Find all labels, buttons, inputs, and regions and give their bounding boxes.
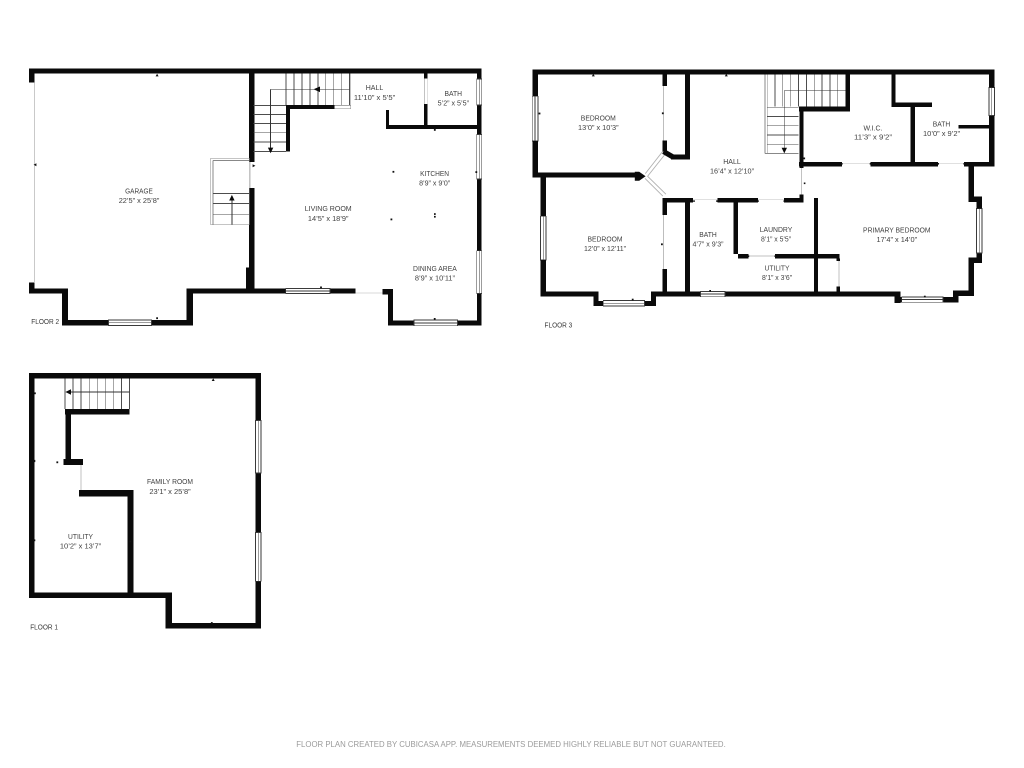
svg-text:10’2” x 13’7”: 10’2” x 13’7” <box>60 542 102 551</box>
svg-text:HALL: HALL <box>723 157 741 166</box>
svg-text:13’0” x 10’3”: 13’0” x 10’3” <box>578 123 619 132</box>
svg-text:11’3” x 9’2”: 11’3” x 9’2” <box>854 133 893 142</box>
svg-text:DINING AREA: DINING AREA <box>413 264 457 273</box>
svg-text:HALL: HALL <box>366 83 384 92</box>
svg-text:10’0” x 9’2”: 10’0” x 9’2” <box>923 129 961 138</box>
svg-text:FAMILY ROOM: FAMILY ROOM <box>147 477 193 486</box>
svg-text:16’4” x 12’10”: 16’4” x 12’10” <box>710 167 755 176</box>
svg-text:4’7” x 9’3”: 4’7” x 9’3” <box>693 239 725 248</box>
svg-text:LAUNDRY: LAUNDRY <box>760 225 793 234</box>
svg-text:BEDROOM: BEDROOM <box>588 234 623 243</box>
svg-text:KITCHEN: KITCHEN <box>420 169 449 178</box>
svg-text:FLOOR 1: FLOOR 1 <box>30 623 58 632</box>
svg-text:8’9” x 10’11”: 8’9” x 10’11” <box>415 274 456 283</box>
svg-text:BATH: BATH <box>933 119 951 128</box>
svg-text:FLOOR 2: FLOOR 2 <box>31 317 59 326</box>
svg-text:FLOOR PLAN CREATED BY CUBICASA: FLOOR PLAN CREATED BY CUBICASA APP. MEAS… <box>296 740 726 749</box>
svg-text:UTILITY: UTILITY <box>68 532 93 541</box>
svg-text:11’10” x 5’5”: 11’10” x 5’5” <box>354 93 396 102</box>
svg-text:8’9” x 9’0”: 8’9” x 9’0” <box>419 179 451 188</box>
svg-text:FLOOR 3: FLOOR 3 <box>545 320 573 329</box>
svg-text:PRIMARY BEDROOM: PRIMARY BEDROOM <box>863 226 931 235</box>
svg-text:W.I.C.: W.I.C. <box>864 123 883 132</box>
svg-text:14’5” x 18’9”: 14’5” x 18’9” <box>308 214 349 223</box>
svg-text:8’1” x 5’5”: 8’1” x 5’5” <box>761 235 791 244</box>
svg-text:BEDROOM: BEDROOM <box>581 114 616 123</box>
svg-text:8’1” x 3’6”: 8’1” x 3’6” <box>762 273 792 282</box>
svg-text:LIVING ROOM: LIVING ROOM <box>305 204 352 213</box>
svg-text:5’2” x 5’5”: 5’2” x 5’5” <box>438 99 470 108</box>
svg-text:GARAGE: GARAGE <box>125 187 153 196</box>
svg-text:17’4” x 14’0”: 17’4” x 14’0” <box>877 235 918 244</box>
svg-text:UTILITY: UTILITY <box>765 263 790 272</box>
svg-text:12’0” x 12’11”: 12’0” x 12’11” <box>584 244 627 253</box>
svg-text:BATH: BATH <box>445 89 463 98</box>
svg-text:23’1” x 25’8”: 23’1” x 25’8” <box>149 487 191 496</box>
svg-text:22’5” x 25’8”: 22’5” x 25’8” <box>119 196 160 205</box>
svg-text:BATH: BATH <box>699 230 717 239</box>
